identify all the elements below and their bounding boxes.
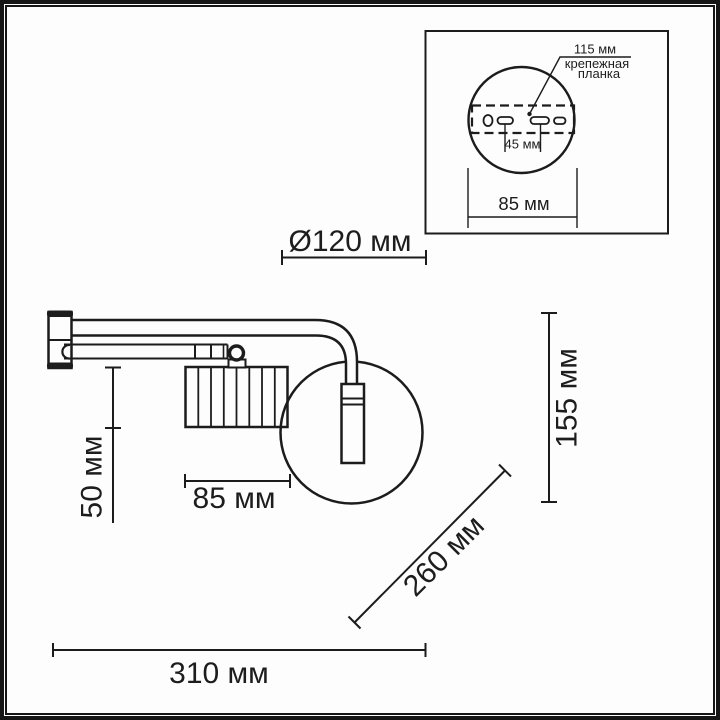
mounting-plate-dashed — [472, 106, 574, 134]
dim-fixture-height: 155 мм — [541, 313, 584, 502]
pleated-shade — [186, 367, 288, 427]
dim-label-hole-spacing: 45 мм — [505, 137, 541, 152]
shade-pleat-lines — [198, 367, 274, 427]
dim-label-shade-diameter: Ø120 мм — [289, 225, 412, 258]
dim-drop-height: 50 мм — [76, 367, 122, 523]
dim-label-arm-diagonal: 260 мм — [397, 509, 491, 603]
wall-bracket-top-cap — [47, 311, 73, 318]
dim-shade-diameter: Ø120 мм — [282, 225, 426, 265]
plate-slot-left — [498, 117, 514, 124]
dim-arm-diagonal: 260 мм — [349, 465, 512, 629]
dim-shade-width: 85 мм — [185, 474, 290, 515]
main-drawing: Ø120 мм 50 мм 85 мм 155 мм — [47, 225, 584, 690]
swivel-knob — [230, 346, 244, 360]
dim-base-width: 85 мм — [468, 168, 577, 228]
dim-label-total-width: 310 мм — [169, 657, 269, 690]
lower-arm-pivot-end — [62, 345, 70, 359]
inset-detail-view: 115 мм крепежная планка 45 мм 85 мм — [426, 31, 669, 234]
plate-round-hole — [484, 115, 493, 126]
mount-plate-label-line2: планка — [578, 66, 621, 81]
dim-label-base-width: 85 мм — [498, 193, 549, 214]
wall-bracket-bottom-cap — [47, 363, 73, 370]
dimension-drawing-page: Ø120 мм 50 мм 85 мм 155 мм — [0, 0, 720, 720]
bulb-socket — [342, 384, 365, 463]
sconce-dimension-drawing: Ø120 мм 50 мм 85 мм 155 мм — [0, 0, 720, 720]
dim-label-drop-height: 50 мм — [76, 436, 109, 519]
dim-label-shade-width: 85 мм — [193, 482, 276, 515]
dim-label-fixture-height: 155 мм — [551, 348, 584, 448]
lower-arm — [62, 345, 227, 359]
plate-slot-right — [554, 118, 566, 125]
plate-slot-middle — [531, 117, 550, 124]
dim-total-width: 310 мм — [53, 643, 426, 690]
dim-hole-spacing: 45 мм — [505, 124, 541, 153]
dim-label-plate-length: 115 мм — [574, 42, 616, 57]
